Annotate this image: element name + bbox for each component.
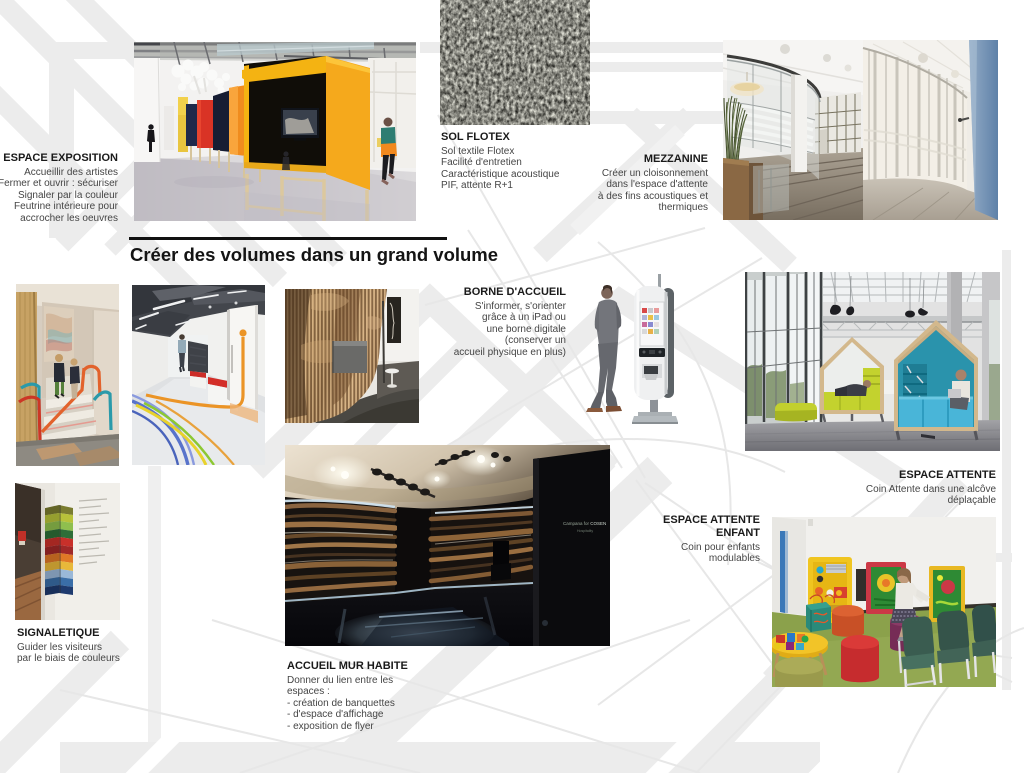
svg-text:Hospitality: Hospitality xyxy=(577,529,593,533)
svg-text:Campana for COSEN: Campana for COSEN xyxy=(563,521,606,526)
